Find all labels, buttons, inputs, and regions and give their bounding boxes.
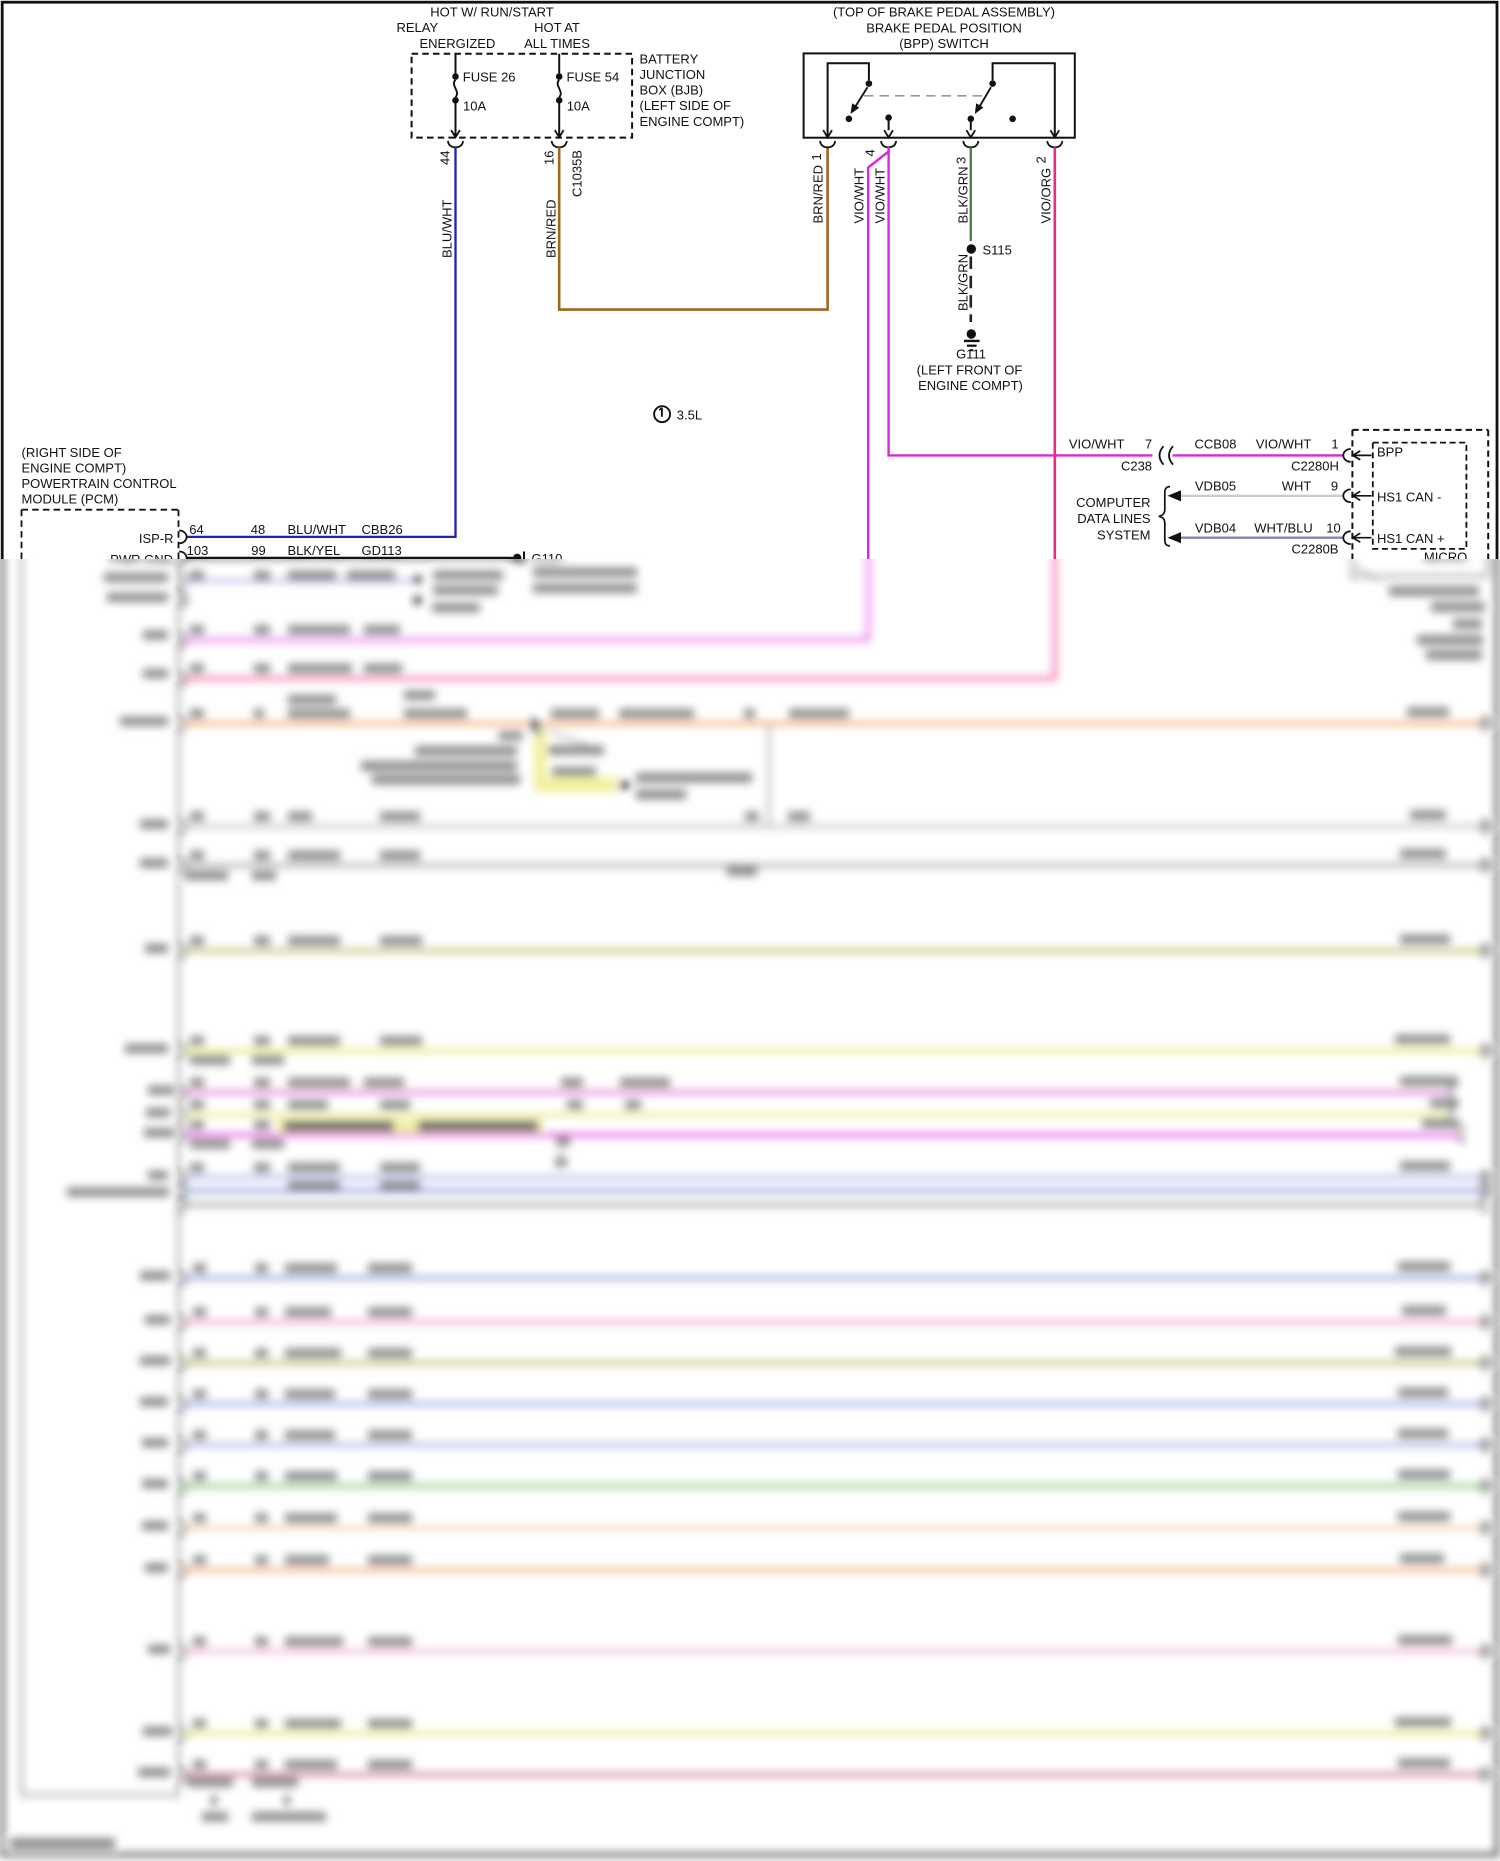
svg-text:BATTERY: BATTERY	[640, 52, 699, 67]
svg-text:ENGINE COMPT): ENGINE COMPT)	[22, 460, 127, 475]
svg-text:BPP: BPP	[1377, 445, 1403, 460]
svg-text:POWERTRAIN CONTROL: POWERTRAIN CONTROL	[22, 476, 177, 491]
svg-text:C2280H: C2280H	[1291, 458, 1339, 473]
svg-text:BLK/GRN: BLK/GRN	[956, 254, 971, 311]
svg-text:ENGINE COMPT): ENGINE COMPT)	[640, 114, 745, 129]
svg-text:1: 1	[809, 153, 824, 160]
svg-text:ALL TIMES: ALL TIMES	[524, 36, 590, 51]
svg-text:103: 103	[187, 543, 209, 558]
svg-text:1: 1	[1331, 437, 1338, 452]
svg-text:10A: 10A	[463, 98, 486, 113]
svg-text:4: 4	[863, 149, 878, 156]
svg-text:10A: 10A	[567, 98, 590, 113]
svg-text:VIO/WHT: VIO/WHT	[852, 168, 867, 224]
svg-text:C1035B: C1035B	[570, 150, 585, 197]
svg-text:VDB05: VDB05	[1195, 478, 1236, 493]
svg-text:HS1 CAN -: HS1 CAN -	[1377, 490, 1441, 505]
svg-text:HOT W/ RUN/START: HOT W/ RUN/START	[430, 5, 554, 20]
svg-text:C2280B: C2280B	[1292, 541, 1339, 556]
svg-text:ISP-R: ISP-R	[139, 531, 174, 546]
svg-text:FUSE 54: FUSE 54	[567, 70, 620, 85]
svg-text:10: 10	[1326, 520, 1340, 535]
svg-text:S115: S115	[983, 243, 1012, 258]
svg-text:MODULE (PCM): MODULE (PCM)	[22, 491, 119, 506]
svg-text:3.5L: 3.5L	[677, 407, 702, 422]
svg-text:C238: C238	[1121, 458, 1152, 473]
svg-text:44: 44	[438, 151, 453, 165]
svg-text:BRN/RED: BRN/RED	[544, 199, 559, 258]
svg-text:(LEFT FRONT OF: (LEFT FRONT OF	[917, 362, 1023, 377]
svg-text:RELAY: RELAY	[397, 20, 439, 35]
svg-text:VIO/WHT: VIO/WHT	[873, 168, 888, 224]
svg-text:2: 2	[1034, 156, 1049, 163]
svg-text:COMPUTER: COMPUTER	[1076, 495, 1150, 510]
svg-text:DATA LINES: DATA LINES	[1077, 511, 1151, 526]
svg-text:CBB26: CBB26	[362, 522, 403, 537]
svg-text:BLK/YEL: BLK/YEL	[288, 543, 341, 558]
svg-text:GD113: GD113	[362, 543, 402, 558]
svg-text:HOT AT: HOT AT	[534, 20, 580, 35]
svg-text:(LEFT SIDE OF: (LEFT SIDE OF	[640, 98, 732, 113]
svg-text:ENGINE COMPT): ENGINE COMPT)	[918, 378, 1023, 393]
svg-text:64: 64	[189, 522, 203, 537]
svg-text:9: 9	[1331, 478, 1338, 493]
svg-text:VIO/ORG: VIO/ORG	[1039, 168, 1054, 224]
svg-text:BRAKE PEDAL POSITION: BRAKE PEDAL POSITION	[866, 20, 1022, 35]
svg-text:BLU/WHT: BLU/WHT	[440, 199, 455, 258]
svg-text:JUNCTION: JUNCTION	[640, 67, 706, 82]
svg-text:99: 99	[251, 543, 265, 558]
svg-text:(RIGHT SIDE OF: (RIGHT SIDE OF	[22, 445, 122, 460]
svg-text:WHT/BLU: WHT/BLU	[1254, 520, 1313, 535]
svg-text:WHT: WHT	[1282, 478, 1312, 493]
svg-text:BOX (BJB): BOX (BJB)	[640, 83, 704, 98]
svg-text:7: 7	[1145, 437, 1152, 452]
svg-text:FUSE 26: FUSE 26	[463, 70, 516, 85]
svg-text:VIO/WHT: VIO/WHT	[1256, 437, 1312, 452]
svg-text:BLU/WHT: BLU/WHT	[288, 522, 347, 537]
svg-text:HS1 CAN +: HS1 CAN +	[1377, 531, 1445, 546]
svg-text:(BPP) SWITCH: (BPP) SWITCH	[899, 36, 989, 51]
svg-text:VDB04: VDB04	[1195, 520, 1236, 535]
svg-text:BRN/RED: BRN/RED	[811, 165, 826, 224]
svg-text:BLK/GRN: BLK/GRN	[956, 166, 971, 223]
svg-text:VIO/WHT: VIO/WHT	[1069, 437, 1125, 452]
svg-text:ENERGIZED: ENERGIZED	[420, 36, 496, 51]
svg-text:16: 16	[542, 151, 557, 165]
svg-text:SYSTEM: SYSTEM	[1097, 527, 1150, 542]
svg-text:48: 48	[251, 522, 265, 537]
svg-text:(TOP OF BRAKE PEDAL ASSEMBLY): (TOP OF BRAKE PEDAL ASSEMBLY)	[833, 5, 1055, 20]
svg-text:G111: G111	[956, 347, 986, 362]
svg-text:CCB08: CCB08	[1195, 437, 1237, 452]
svg-text:3: 3	[954, 157, 969, 164]
